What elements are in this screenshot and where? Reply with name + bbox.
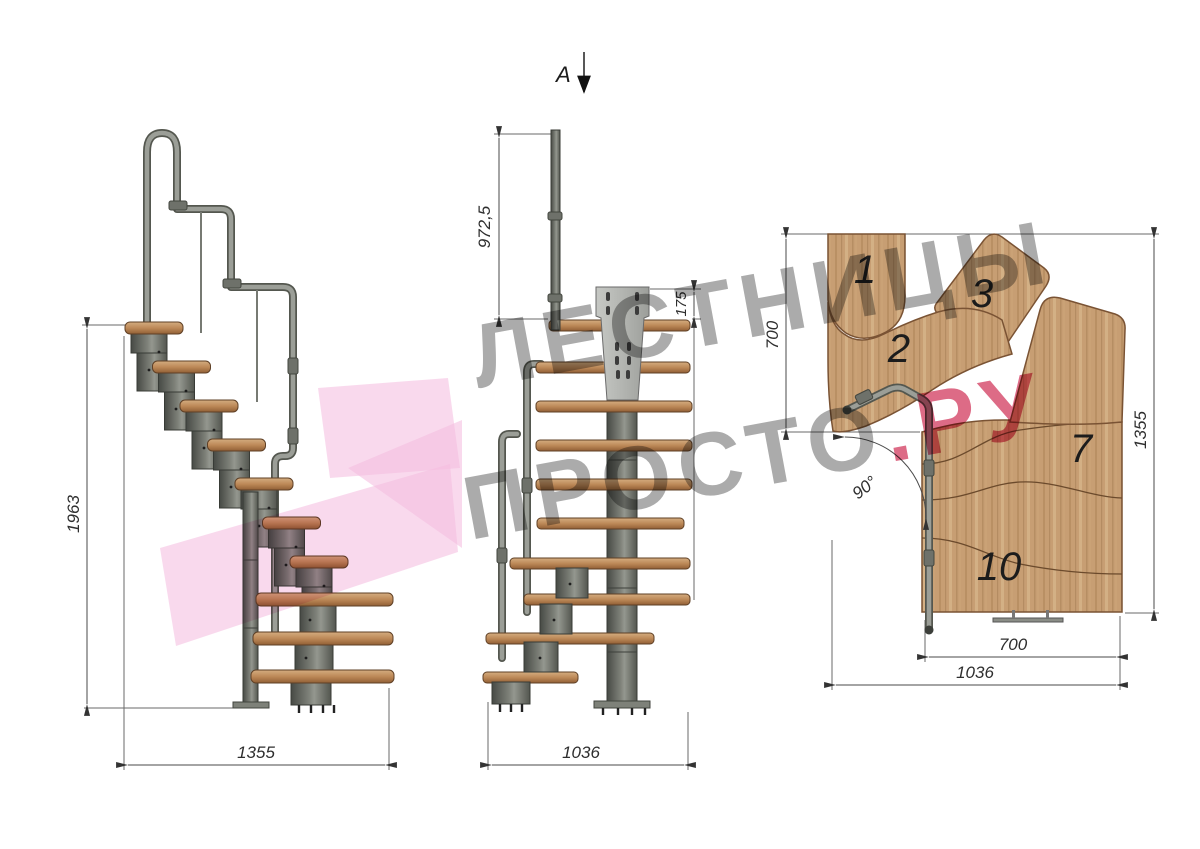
dim-side-depth-label: 1355 — [237, 743, 275, 762]
drawing-svg: 1963 1355 — [0, 0, 1200, 849]
tread-number-2: 2 — [887, 327, 910, 371]
tread-number-10: 10 — [977, 545, 1022, 589]
dim-front-width-label: 1036 — [562, 743, 600, 762]
dim-post-height-label: 972,5 — [475, 205, 494, 248]
dim-plan-length-label: 1355 — [1131, 411, 1150, 449]
dim-plan-total-width-label: 1036 — [956, 663, 994, 682]
foot-bolts — [299, 705, 334, 713]
dim-side-height-label: 1963 — [64, 495, 83, 533]
tread-number-7: 7 — [1070, 427, 1094, 471]
dim-plan-flight-width-label: 700 — [999, 635, 1028, 654]
front-view: А 972,5 — [475, 52, 701, 770]
stair-technical-drawing: 1963 1355 — [0, 0, 1200, 849]
section-marker-label: А — [554, 62, 571, 87]
